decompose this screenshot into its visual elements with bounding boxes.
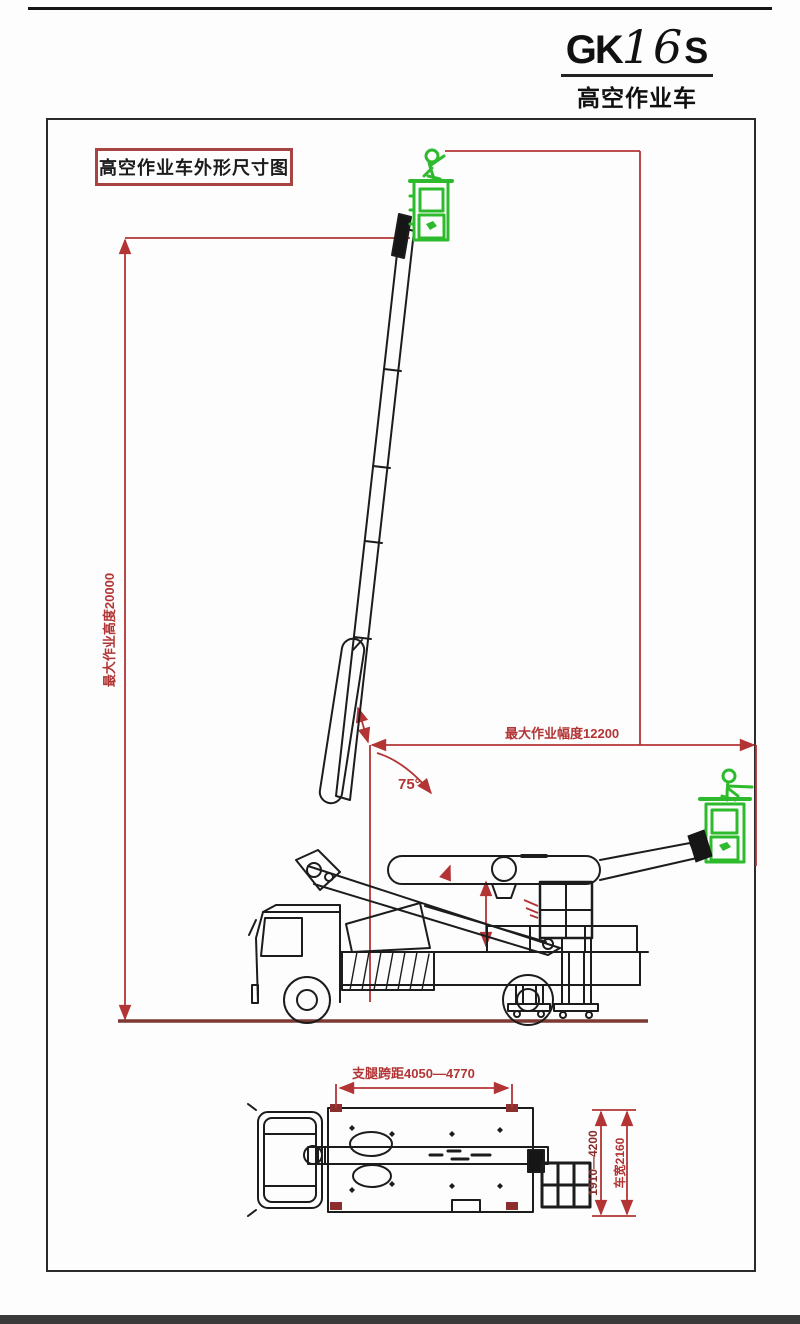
boom-plan — [308, 1147, 548, 1164]
outrigger-span-dimension: 支腿跨距4050—4770 — [351, 1066, 475, 1081]
upper-work-basket — [410, 150, 452, 240]
horizontal-boom — [388, 856, 600, 884]
truck-top-view — [248, 1104, 590, 1216]
luffing-cylinder — [320, 639, 364, 803]
max-working-radius-dimension: 最大作业幅度12200 — [505, 726, 619, 741]
dimension-lines-top-view: 支腿跨距4050—4770 1910—4200 车宽2160 — [330, 1066, 636, 1216]
operator-figure-right — [722, 770, 752, 800]
cab-window — [261, 918, 302, 956]
telescopic-boom — [336, 227, 414, 800]
basket-logo-icon — [719, 842, 731, 851]
sheet-bottom-bar — [0, 1315, 800, 1324]
boom-tip-right — [688, 830, 712, 862]
dimension-lines-side-view: 最大作业高度20000 最大作业幅度12200 75° — [102, 151, 756, 1021]
chassis-plan — [328, 1108, 533, 1212]
drawing-sheet: GK16S 高空作业车 高空作业车外形尺寸图 最大作业高度20000 最大作业幅… — [0, 0, 800, 1324]
dimension-drawing: 最大作业高度20000 最大作业幅度12200 75° — [0, 0, 800, 1324]
rear-wheel — [503, 975, 553, 1025]
max-working-height-dimension: 最大作业高度20000 — [102, 573, 117, 687]
turntable-plan — [350, 1132, 392, 1156]
vehicle-width-dimension: 车宽2160 — [612, 1137, 627, 1188]
slew-range-dimension: 1910—4200 — [586, 1130, 600, 1196]
front-wheel — [284, 977, 330, 1023]
boom-tip — [392, 214, 411, 258]
boom-pulley — [492, 857, 516, 881]
operator-figure-top — [424, 150, 444, 179]
cab-plan — [258, 1112, 322, 1208]
boom-angle-label: 75° — [398, 776, 421, 793]
truck-side-view — [249, 214, 697, 1025]
basket-logo-icon — [426, 221, 437, 230]
turret — [346, 903, 430, 952]
